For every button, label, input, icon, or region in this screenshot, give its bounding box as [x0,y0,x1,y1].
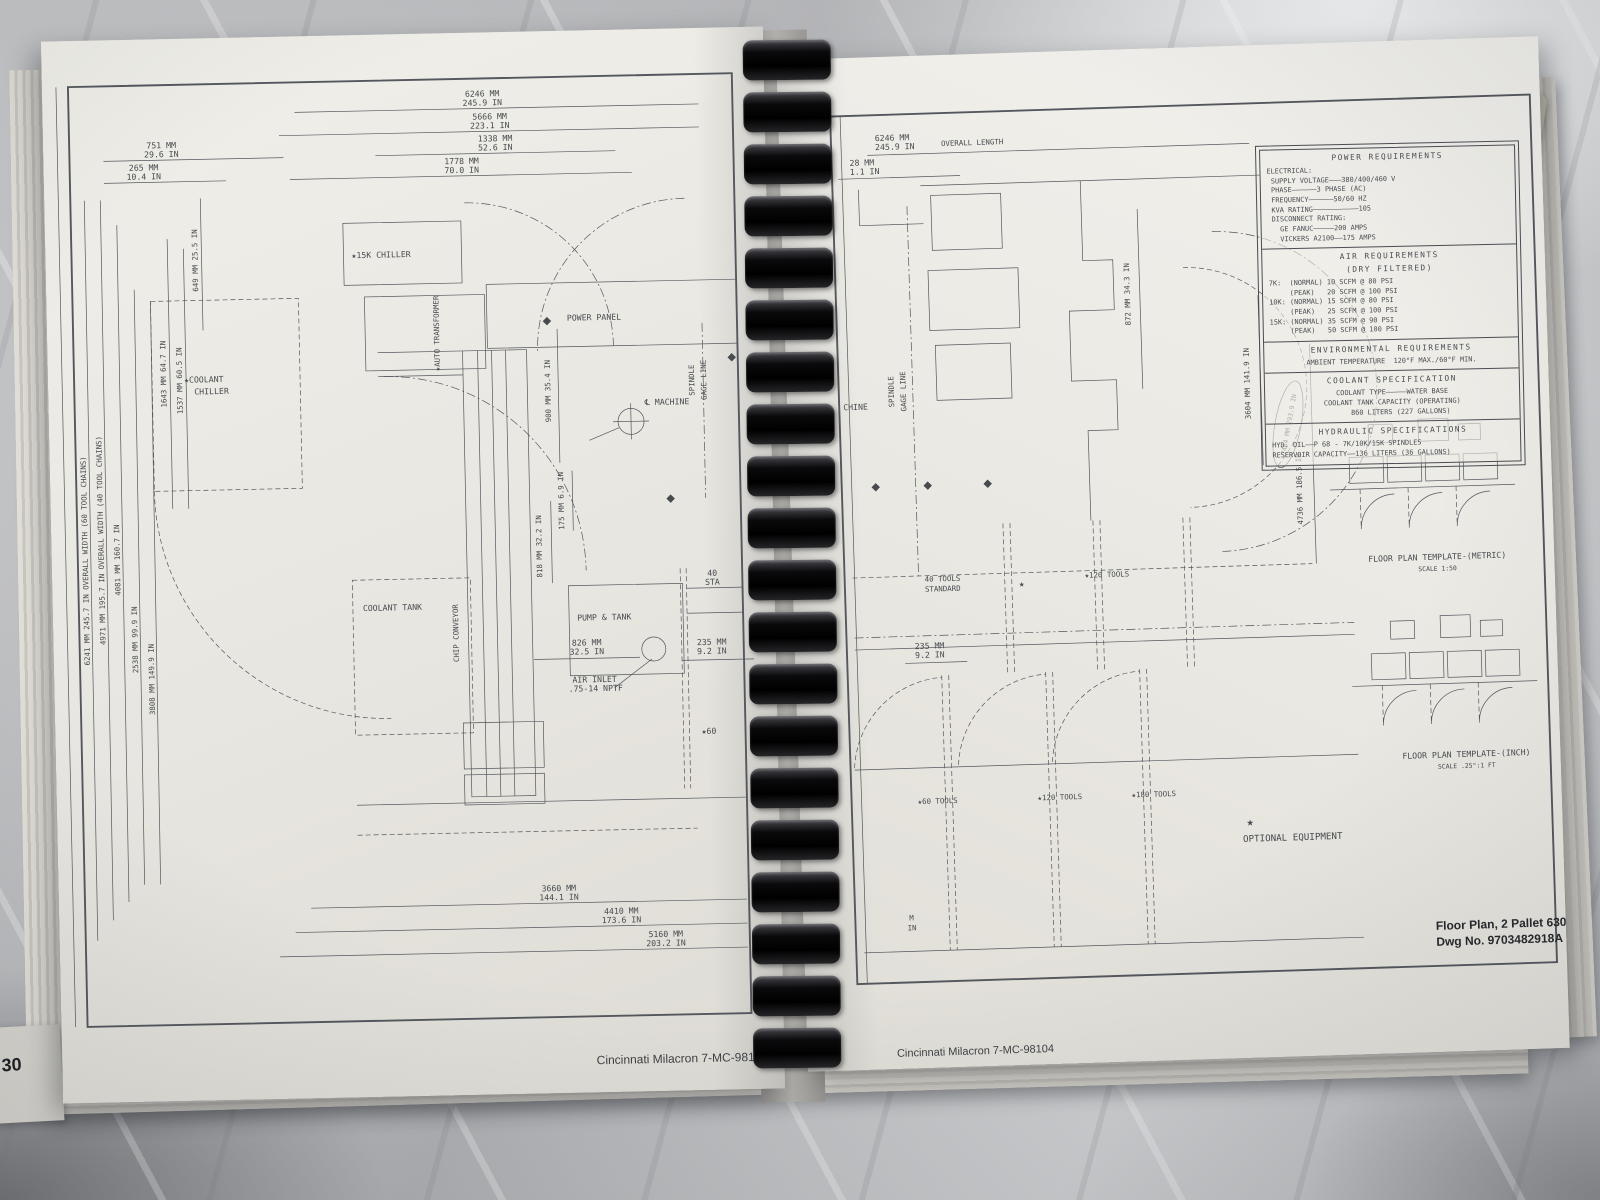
label-machine-partial: CHINE [843,402,868,413]
dim-5160-in: 203.2 IN [646,937,686,948]
label-auto-transformer: ★AUTO TRANSFORMER [431,295,442,371]
air-requirements-section: AIR REQUIREMENTS (DRY FILTERED) 7K: (NOR… [1262,244,1518,342]
page-number: 30 [1,1054,22,1076]
dim-3808: 3808 MM 149.9 IN [147,644,157,715]
dim-6241-overall: 6241 MM 245.7 IN OVERALL WIDTH (60 TOOL … [79,456,92,665]
label-spindle: SPINDLE [687,364,697,395]
label-gage-line: GAGE LINE [699,360,709,400]
power-requirements-section: POWER REQUIREMENTS ELECTRICAL: SUPPLY VO… [1260,145,1516,248]
label-air-inlet-2: .75-14 NPTF [569,683,623,694]
label-star: ★ [1019,579,1025,590]
binding-loop [750,716,838,757]
dim-235-in: 9.2 IN [697,645,727,656]
photo-of-open-manual: { "left_page": { "footer": "Cincinnati M… [0,0,1600,1200]
binding-loop [744,196,832,237]
binding-loop [745,248,833,289]
floor-plan-template-inch [1350,613,1538,727]
right-page-footer: Cincinnati Milacron 7-MC-98104 [897,1043,1054,1060]
binding-loop [751,820,839,861]
binding-loop [743,40,831,81]
binding-loop [747,456,835,497]
label-180-tools: ★180 TOOLS [1131,789,1176,799]
left-page-footer: Cincinnati Milacron 7-MC-98104 [597,1050,769,1068]
label-template-inch: FLOOR PLAN TEMPLATE-(INCH) [1402,747,1530,761]
label-machine-centerline: ℄ MACHINE [644,396,690,407]
dim-751-in: 29.6 IN [144,149,179,160]
binding-loop [751,872,839,913]
left-page[interactable]: 6246 MM 245.9 IN 5666 MM 223.1 IN 751 MM… [41,27,785,1104]
dim-2538: 2538 MM 99.9 IN [130,606,140,673]
binding-loop [753,1028,841,1069]
dim-3604: 3604 MM 141.9 IN [1242,348,1253,419]
binding-loop [748,560,836,601]
dim-265-in: 10.4 IN [126,171,161,182]
label-power-panel: POWER PANEL [567,312,621,323]
title-block-line1: Floor Plan, 2 Pallet 630D [1436,915,1570,933]
dim-overall-in: 245.9 IN [875,141,915,152]
spiral-binding [743,40,846,1069]
top-dimension-lines: 6246 MM 245.9 IN 5666 MM 223.1 IN 751 MM… [102,84,700,183]
dim-235-in: 9.2 IN [915,649,945,660]
machine-plan-left: ★15K CHILLER ★COOLANT CHILLER ★AUTO TRAN… [148,197,757,839]
bottom-dimension-lines: 3660 MM 144.1 IN 4410 MM 173.6 IN 5160 M… [279,879,748,957]
top-dimension-lines: 6246 MM 245.9 IN OVERALL LENGTH 28 MM 1.… [837,121,1252,226]
dim-3660-in: 144.1 IN [539,892,579,903]
binding-loop [752,976,840,1017]
dim-872: 872 MM 34.3 IN [1122,263,1133,326]
left-dimension-lines: 6241 MM 245.7 IN OVERALL WIDTH (60 TOOL … [73,198,215,940]
dim-overall-note: OVERALL LENGTH [941,137,1004,148]
dim-1643: 1643 MM 64.7 IN [158,341,168,408]
dim-1338-in: 52.6 IN [478,142,513,153]
binding-loop [745,300,833,341]
dim-4081: 4081 MM 160.7 IN [112,525,122,596]
right-page[interactable]: 6246 MM 245.9 IN OVERALL LENGTH 28 MM 1.… [776,36,1569,1071]
dim-4410-in: 173.6 IN [602,914,642,925]
dim-28-in: 1.1 IN [850,166,880,177]
coolant-specification-section: COOLANT SPECIFICATION COOLANT TYPE—————W… [1265,368,1520,424]
label-template-inch-scale: SCALE .25":1 FT [1438,761,1496,771]
label-standard: STANDARD [925,584,961,594]
binding-loop [749,664,837,705]
dim-6246-in: 245.9 IN [463,97,503,108]
label-template-metric: FLOOR PLAN TEMPLATE-(METRIC) [1368,550,1506,564]
label-40-tools: 40 TOOLS [925,574,961,584]
label-120-tools-top: ★120 TOOLS [1084,569,1129,579]
dim-partial-in: IN [907,923,916,932]
optional-equipment-star: ★ [1246,815,1254,829]
label-chip-conveyor: CHIP CONVEYOR [451,604,461,663]
binding-loop [750,768,838,809]
drawing-frame [56,73,752,1027]
dim-1778-in: 70.0 IN [444,165,479,176]
binding-loop [743,92,831,133]
label-spindle: SPINDLE [886,376,896,407]
label-star-60: ★60 [701,726,716,736]
label-coolant-tank: COOLANT TANK [363,602,422,613]
dim-818: 818 MM 32.2 IN [534,515,544,577]
binding-loop [749,612,837,653]
label-sta: STA [705,577,720,587]
left-floor-plan-drawing: 6246 MM 245.9 IN 5666 MM 223.1 IN 751 MM… [41,27,785,1104]
dim-5666-in: 223.1 IN [470,120,510,131]
environmental-requirements-section: ENVIRONMENTAL REQUIREMENTS AMBIENT TEMPE… [1264,336,1519,373]
label-15k-chiller: ★15K CHILLER [351,249,410,260]
hydraulic-specifications-section: HYDRAULIC SPECIFICATIONS HYD. OIL——P 68 … [1266,419,1521,466]
label-120-tools: ★120 TOOLS [1037,792,1082,802]
tool-chain-sections: 40 TOOLS STANDARD ★ ★120 TOOLS 235 MM 9.… [847,512,1364,953]
dim-partial-m: M [909,913,914,922]
label-gage-line: GAGE LINE [898,371,908,411]
binding-loop [746,404,834,445]
label-60-tools: ★60 TOOLS [918,796,958,806]
binding-loop [748,508,836,549]
label-template-metric-scale: SCALE 1:50 [1418,564,1457,573]
label-optional-equipment: OPTIONAL EQUIPMENT [1243,831,1343,845]
binding-loop [752,924,840,965]
binding-loop [746,352,834,393]
dim-4971-overall: 4971 MM 195.7 IN OVERALL WIDTH (40 TOOL … [94,436,107,645]
label-pump-tank: PUMP & TANK [577,611,631,622]
label-coolant-chiller-2: CHILLER [194,386,229,397]
dim-826-in: 32.5 IN [569,646,604,657]
binding-loop [744,144,832,185]
page-corner-bottom-left: 30 [0,1024,64,1124]
specification-table: POWER REQUIREMENTS ELECTRICAL: SUPPLY VO… [1259,144,1522,466]
dim-900: 900 MM 35.4 IN [543,360,553,422]
dim-649: 649 MM 25.5 IN [190,229,200,291]
title-block-line2: Dwg No. 9703482918A (Sht [1436,930,1570,949]
label-coolant-chiller-1: ★COOLANT [184,374,224,385]
dim-175: 175 MM 6.9 IN [556,472,566,530]
